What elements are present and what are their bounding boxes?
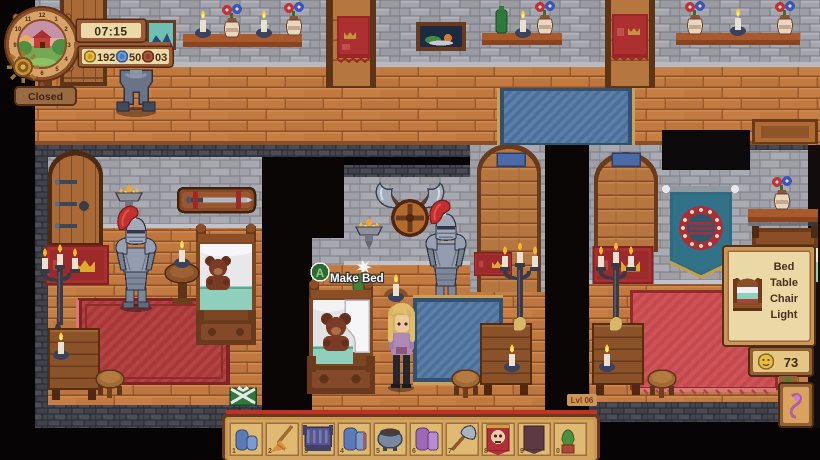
svg-text:73: 73 — [784, 355, 798, 370]
svg-text:Make Bed: Make Bed — [330, 273, 384, 285]
svg-text:Chair: Chair — [770, 293, 799, 305]
svg-text:0: 0 — [556, 448, 560, 455]
svg-text:5: 5 — [376, 448, 380, 455]
svg-text:50: 50 — [129, 52, 141, 64]
svg-text:Table: Table — [770, 277, 798, 289]
svg-text:Closed: Closed — [28, 91, 63, 103]
svg-text:Bed: Bed — [774, 261, 795, 273]
svg-text:12: 12 — [39, 13, 46, 19]
svg-text:Lvl 06: Lvl 06 — [571, 396, 594, 405]
svg-text:2: 2 — [268, 448, 272, 455]
svg-text:9: 9 — [520, 448, 524, 455]
svg-text:7: 7 — [448, 448, 452, 455]
svg-text:1: 1 — [232, 448, 236, 455]
svg-text:3: 3 — [304, 448, 308, 455]
svg-text:07:15: 07:15 — [94, 25, 127, 39]
svg-text:6: 6 — [412, 448, 416, 455]
svg-text:8: 8 — [484, 448, 488, 455]
svg-text:192: 192 — [97, 52, 115, 64]
svg-text:03: 03 — [155, 52, 167, 64]
svg-text:A: A — [316, 266, 325, 280]
svg-text:Light: Light — [771, 309, 798, 321]
svg-text:4: 4 — [340, 448, 344, 455]
